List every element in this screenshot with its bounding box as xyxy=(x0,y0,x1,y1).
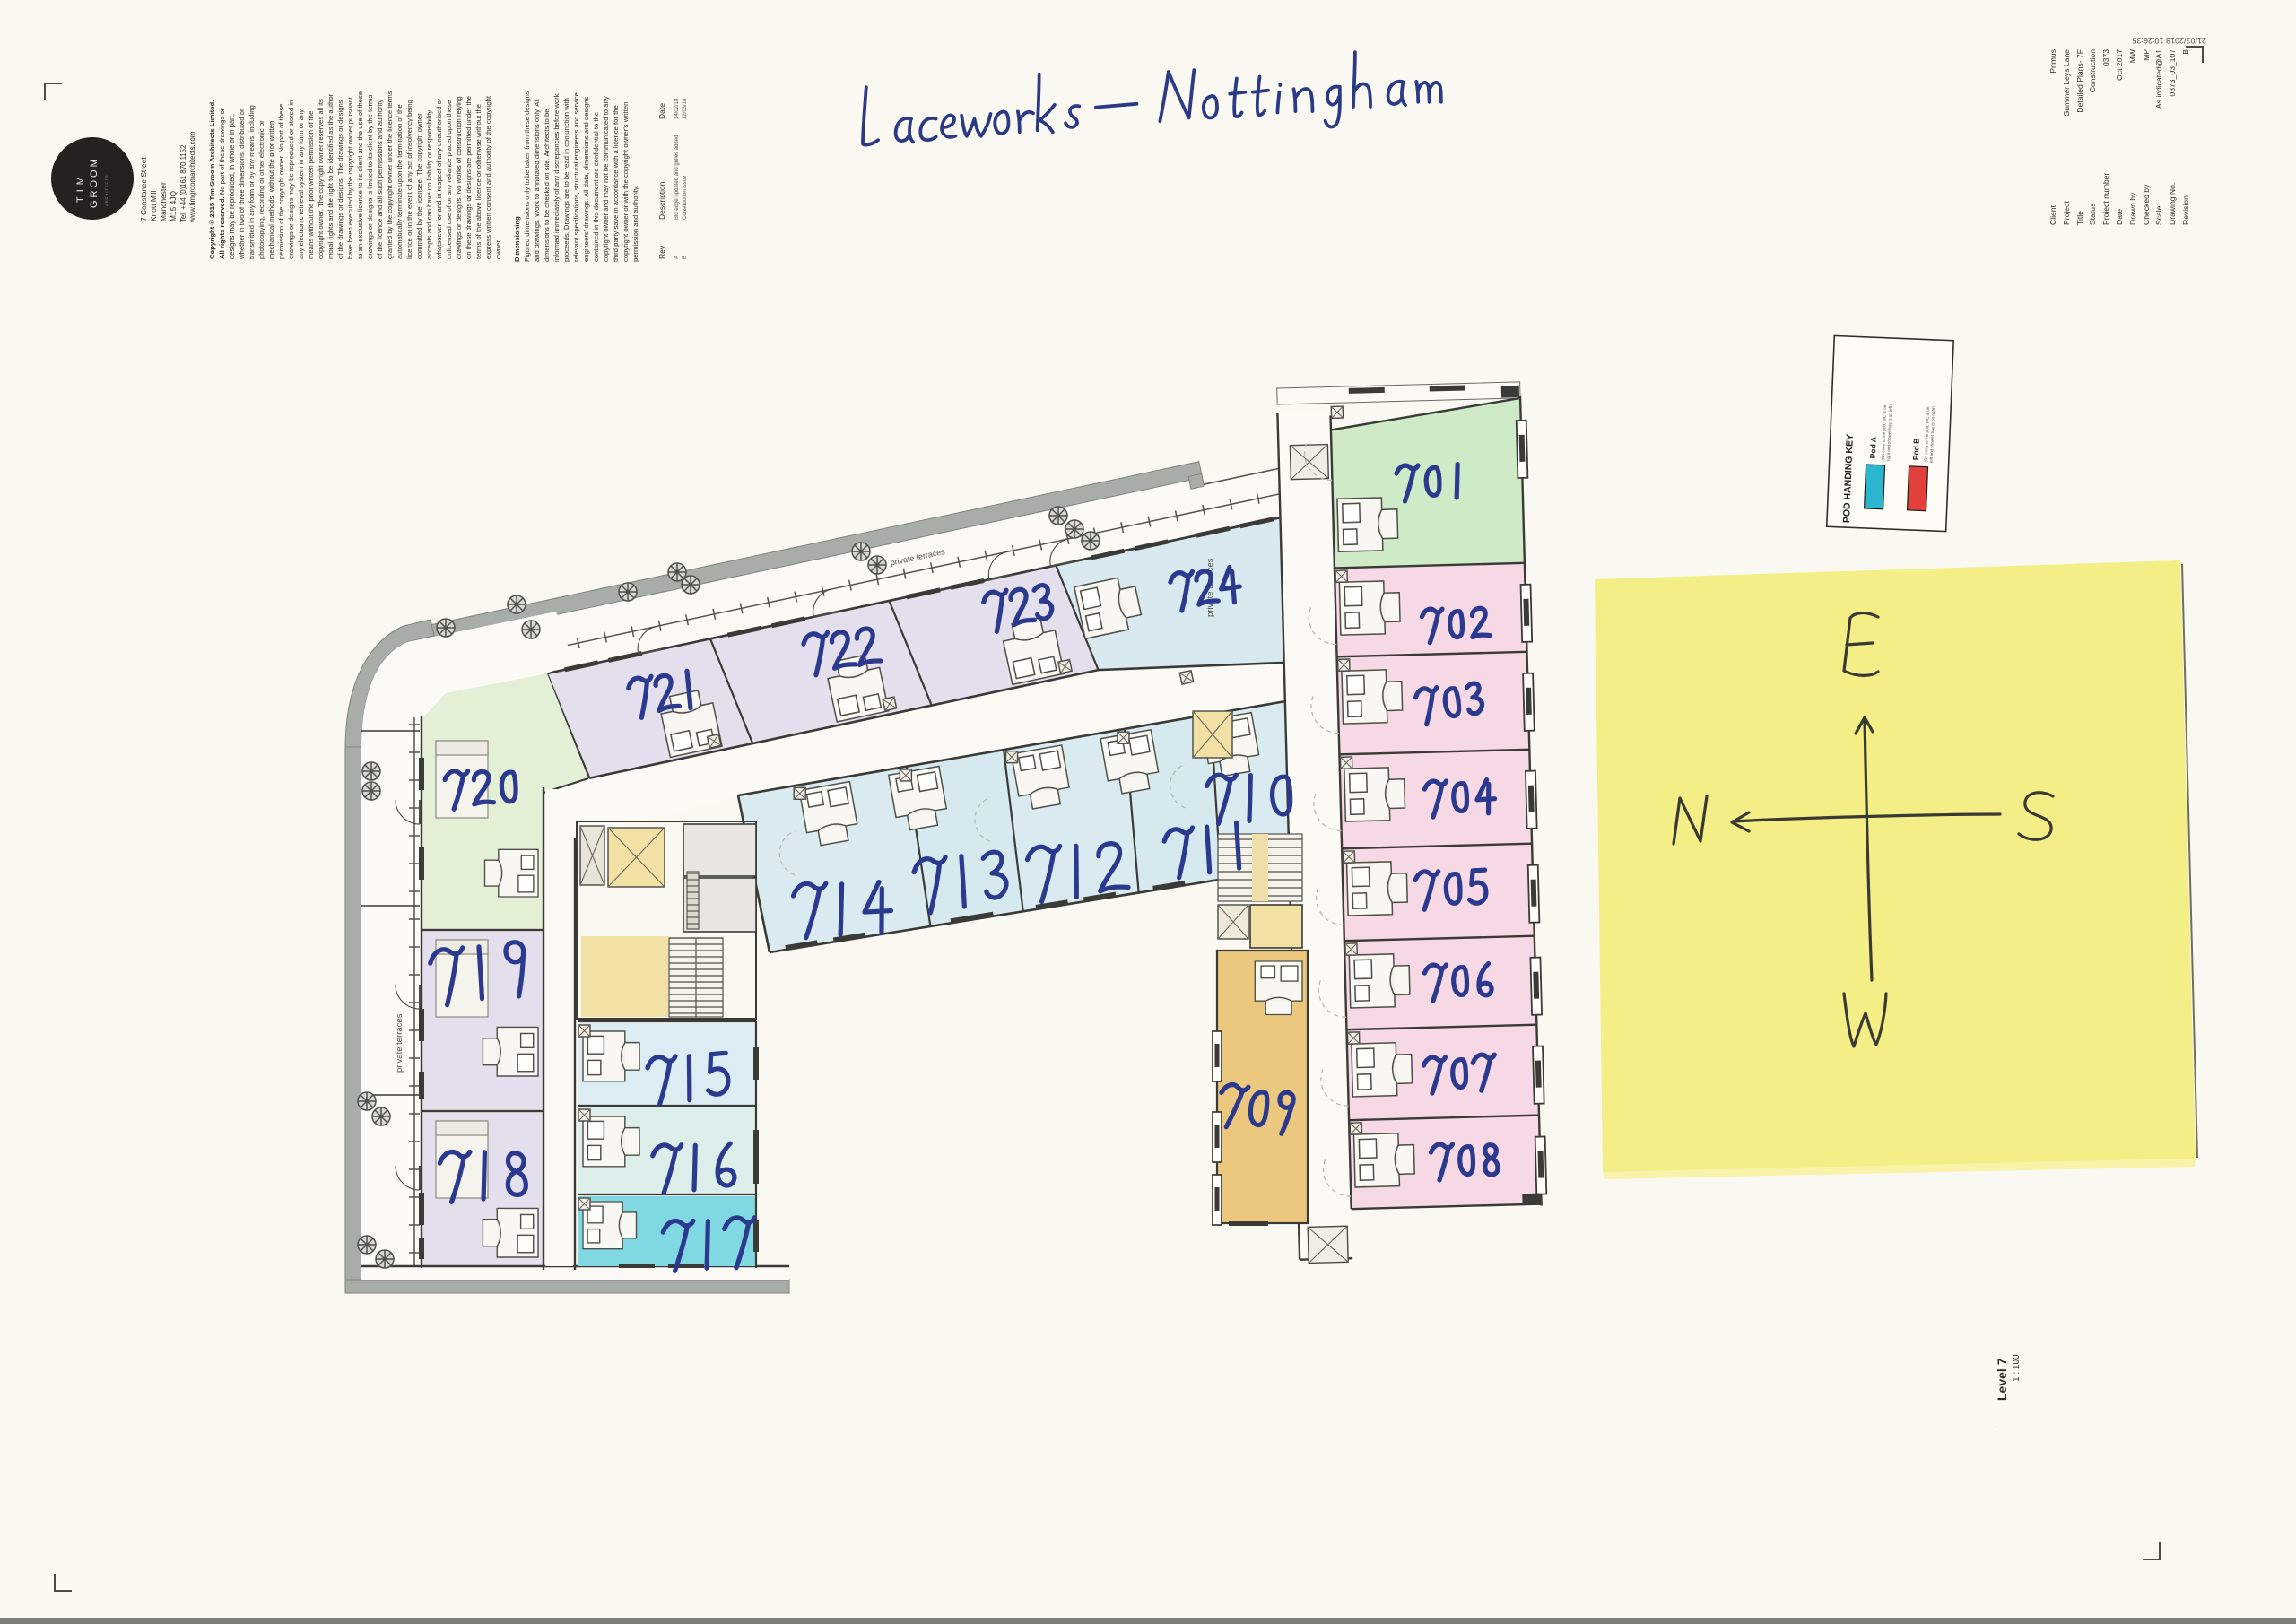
svg-text:Pod B: Pod B xyxy=(1911,438,1921,460)
svg-text:Pod A: Pod A xyxy=(1868,437,1878,459)
svg-text:private terraces: private terraces xyxy=(395,1013,404,1073)
